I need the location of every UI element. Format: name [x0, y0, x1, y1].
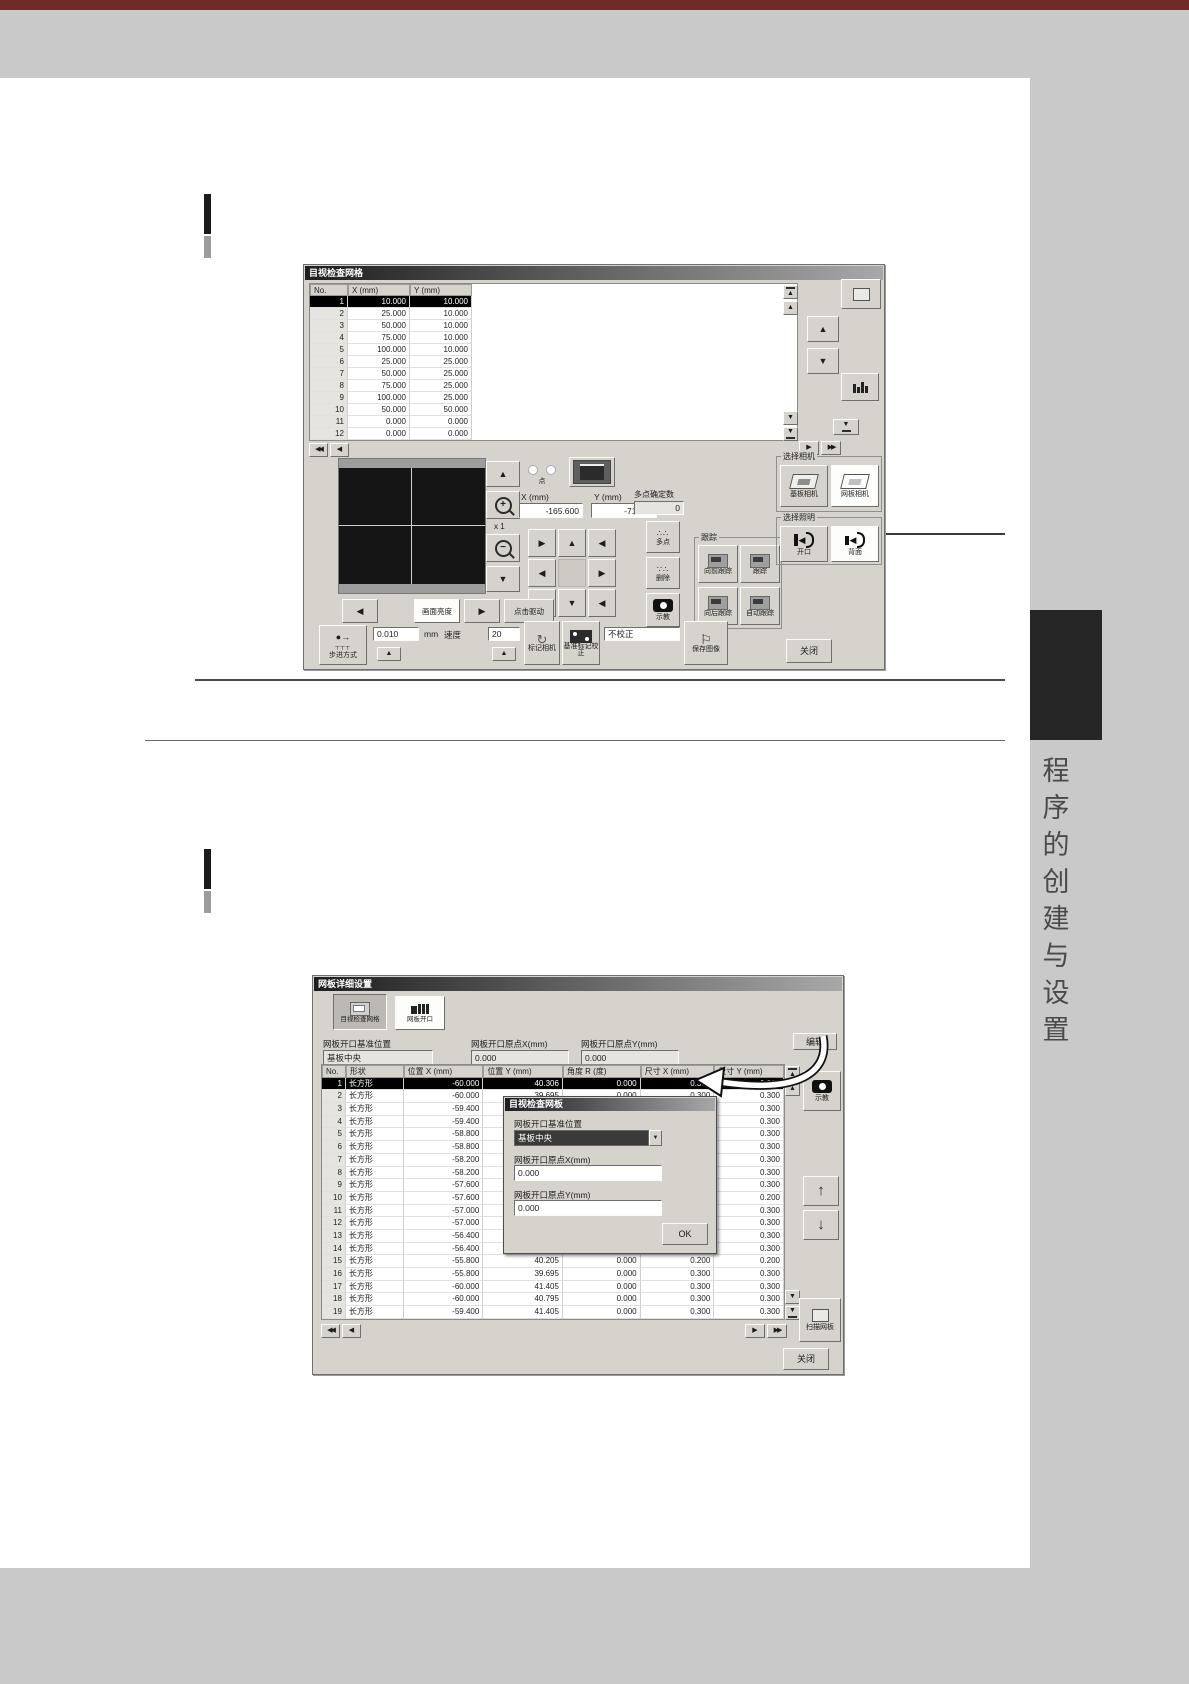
table-cell[interactable]: 0.300 — [714, 1281, 784, 1294]
table-cell[interactable]: 3 — [322, 1103, 346, 1116]
table-cell[interactable]: 长方形 — [346, 1243, 404, 1256]
table-cell[interactable]: 19 — [322, 1306, 346, 1319]
table-cell[interactable]: -56.400 — [404, 1230, 484, 1243]
section-marker-shadow — [204, 891, 211, 913]
crosshair-vertical — [411, 468, 412, 584]
step-mode-button[interactable]: ●→ ┬┬┬ 步进方式 — [319, 625, 367, 665]
table-cell[interactable]: 25.000 — [410, 368, 472, 380]
table-cell[interactable]: 9 — [310, 392, 348, 404]
stencil-aperture-toolbar-button[interactable]: 网板开口 — [395, 996, 445, 1030]
table-header-row: No.形状位置 X (mm)位置 Y (mm)角度 R (度)尺寸 X (mm)… — [322, 1065, 784, 1078]
step-mode-icon: ●→ — [336, 632, 350, 642]
edit-button[interactable]: 编辑 — [793, 1033, 837, 1050]
scroll-top-button[interactable]: ▲ — [785, 1066, 800, 1080]
table-cell[interactable]: 11 — [310, 416, 348, 428]
view-down-button[interactable]: ▼ — [486, 566, 520, 592]
capture-tool-button[interactable] — [841, 279, 881, 309]
table-cell[interactable]: 41.405 — [483, 1281, 563, 1294]
table-cell[interactable]: 0.300 — [714, 1306, 784, 1319]
table-cell[interactable]: 0.000 — [563, 1281, 641, 1294]
jog-right-button[interactable]: ▶ — [588, 559, 616, 587]
multi-point-count-value: 0 — [634, 501, 684, 515]
table-cell[interactable]: 75.000 — [348, 380, 410, 392]
track-auto-button[interactable]: 自动跟踪 — [740, 587, 780, 625]
table-cell[interactable]: 长方形 — [346, 1116, 404, 1129]
table-cell[interactable]: 0.000 — [348, 416, 410, 428]
table-row[interactable]: 5100.00010.000 — [310, 344, 797, 356]
point-indicator: 点 — [528, 465, 556, 485]
delete-point-icon: ∵∴ — [657, 565, 669, 575]
table-cell[interactable]: -57.600 — [404, 1179, 484, 1192]
table-cell[interactable]: 长方形 — [346, 1306, 404, 1319]
table-cell[interactable]: 1 — [322, 1078, 346, 1091]
brightness-button[interactable]: 画面亮度 — [414, 599, 460, 623]
table-cell[interactable]: 0.300 — [641, 1306, 715, 1319]
move-down-button[interactable]: ↓ — [803, 1210, 839, 1240]
table-cell[interactable]: 25.000 — [348, 308, 410, 320]
table-cell[interactable]: 10.000 — [410, 344, 472, 356]
table-cell[interactable]: 长方形 — [346, 1090, 404, 1103]
stencil-camera-button[interactable]: 网板相机 — [831, 465, 879, 507]
table-row[interactable]: 225.00010.000 — [310, 308, 797, 320]
crosshair-horizontal — [339, 525, 485, 526]
table-cell[interactable]: 7 — [310, 368, 348, 380]
scanner-icon — [812, 1309, 829, 1322]
page-prev-button[interactable]: ◀ — [342, 1324, 361, 1338]
visual-check-grid-window: 目视检查网格 No.X (mm)Y (mm) 110.00010.000225.… — [303, 264, 885, 670]
zoom-out-button[interactable]: − — [486, 534, 520, 562]
step-mode-ticks: ┬┬┬ — [335, 642, 351, 652]
chapter-title-vertical: 程序的创建与设置 — [1036, 756, 1076, 1052]
bars-icon — [853, 382, 868, 393]
table-cell[interactable]: 40.306 — [483, 1078, 563, 1091]
table-cell[interactable]: 长方形 — [346, 1268, 404, 1281]
camera-strip — [339, 459, 485, 468]
table-cell[interactable]: 50.000 — [410, 404, 472, 416]
table-cell[interactable]: -60.000 — [404, 1078, 484, 1091]
board-camera-icon — [789, 474, 819, 489]
multi-point-icon: ∴∴ — [657, 529, 669, 539]
table-row[interactable]: 350.00010.000 — [310, 320, 797, 332]
chapter-title-char: 与 — [1043, 941, 1070, 971]
table-row[interactable]: 16长方形-55.80039.6950.0000.3000.300 — [322, 1268, 784, 1281]
table-cell[interactable]: 0.300 — [714, 1128, 784, 1141]
table-cell[interactable]: 0.000 — [410, 416, 472, 428]
chapter-title-char: 建 — [1043, 904, 1070, 934]
teach-icon — [653, 599, 673, 612]
scroll-up-button[interactable]: ▲ — [785, 1082, 800, 1096]
y-coord-label: Y (mm) — [594, 492, 622, 502]
track-icon — [750, 554, 770, 568]
delete-point-button[interactable]: ∵∴ 删除 — [646, 557, 680, 589]
table-cell[interactable]: -58.800 — [404, 1141, 484, 1154]
table-cell[interactable]: 长方形 — [346, 1281, 404, 1294]
table-cell[interactable]: 3 — [310, 320, 348, 332]
origin-x-value: 0.000 — [471, 1050, 569, 1065]
table-row[interactable]: 1050.00050.000 — [310, 404, 797, 416]
horizontal-rule — [195, 679, 1005, 681]
bottom-gray-band — [0, 1568, 1189, 1684]
table-cell[interactable]: 1 — [310, 296, 348, 308]
table-cell[interactable]: 40.205 — [483, 1255, 563, 1268]
table-row[interactable]: 475.00010.000 — [310, 332, 797, 344]
table-cell[interactable]: 0.300 — [714, 1243, 784, 1256]
scroll-bottom-button[interactable]: ▼ — [785, 1306, 800, 1320]
table-cell[interactable]: 100.000 — [348, 344, 410, 356]
table-cell[interactable]: 0.000 — [348, 428, 410, 440]
origin-y-label: 网板开口原点Y(mm) — [581, 1038, 658, 1050]
table-cell[interactable]: 0.000 — [410, 428, 472, 440]
table-cell[interactable]: 0.200 — [641, 1255, 715, 1268]
jog-up-button[interactable]: ▲ — [558, 529, 586, 557]
table-cell[interactable]: 10 — [310, 404, 348, 416]
table-cell[interactable]: 5 — [322, 1128, 346, 1141]
table-cell[interactable]: 0.000 — [563, 1078, 641, 1091]
scan-stencil-button[interactable]: 扫描网板 — [799, 1298, 841, 1342]
table-cell[interactable]: 0.300 — [641, 1078, 715, 1091]
table-cell: No. — [322, 1065, 346, 1078]
table-cell[interactable]: 0.300 — [714, 1230, 784, 1243]
table-cell[interactable]: 25.000 — [410, 380, 472, 392]
table-cell[interactable]: 0.300 — [714, 1154, 784, 1167]
table-cell[interactable]: -59.400 — [404, 1103, 484, 1116]
move-up-button[interactable]: ↑ — [803, 1176, 839, 1206]
table-cell[interactable]: 2 — [322, 1090, 346, 1103]
chapter-title-char: 创 — [1043, 867, 1070, 897]
window-title: 网板详细设置 — [314, 977, 842, 991]
table-cell[interactable]: 0.000 — [563, 1293, 641, 1306]
table-cell[interactable]: -59.400 — [404, 1116, 484, 1129]
table-cell[interactable]: 50.000 — [348, 404, 410, 416]
table-body: 110.00010.000225.00010.000350.00010.0004… — [310, 296, 797, 440]
table-cell[interactable]: 50.000 — [348, 320, 410, 332]
screen-icon — [573, 460, 611, 484]
table-cell: 位置 X (mm) — [404, 1065, 484, 1078]
page-first-button[interactable]: ◀◀ — [321, 1324, 340, 1338]
table-row[interactable]: 19长方形-59.40041.4050.0000.3000.300 — [322, 1306, 784, 1319]
aperture-light-icon: ◀ — [794, 532, 815, 548]
dialog-origin-x-input[interactable]: 0.000 — [514, 1165, 662, 1181]
table-cell[interactable]: 4 — [322, 1116, 346, 1129]
table-cell[interactable]: 长方形 — [346, 1141, 404, 1154]
table-cell[interactable]: 25.000 — [348, 356, 410, 368]
table-cell[interactable]: 0.300 — [714, 1268, 784, 1281]
unit-label: mm — [424, 629, 438, 639]
fiducial-icon — [570, 630, 592, 643]
table-cell[interactable]: -58.800 — [404, 1128, 484, 1141]
table-row[interactable]: 17长方形-60.00041.4050.0000.3000.300 — [322, 1281, 784, 1294]
table-cell: 位置 Y (mm) — [483, 1065, 563, 1078]
pan-left-button[interactable]: ◀ — [342, 599, 378, 623]
table-cell[interactable]: -57.600 — [404, 1192, 484, 1205]
page-last-button[interactable]: ▶▶ — [821, 441, 841, 455]
visual-check-grid-toolbar-button[interactable]: 目视检查网格 — [333, 994, 387, 1030]
table-cell: No. — [310, 284, 348, 296]
table-cell[interactable]: 10.000 — [410, 332, 472, 344]
table-cell[interactable]: 0.300 — [641, 1293, 715, 1306]
table-cell[interactable]: 长方形 — [346, 1217, 404, 1230]
table-cell[interactable]: 0.000 — [563, 1268, 641, 1281]
speed-label: 速度 — [444, 629, 461, 641]
table-row[interactable]: 625.00025.000 — [310, 356, 797, 368]
table-cell: 尺寸 Y (mm) — [714, 1065, 784, 1078]
table-cell[interactable]: 25.000 — [410, 356, 472, 368]
track-backward-icon — [708, 596, 728, 610]
page-prev-button[interactable]: ◀ — [330, 443, 349, 457]
table-cell[interactable]: 17 — [322, 1281, 346, 1294]
table-cell[interactable]: 4 — [310, 332, 348, 344]
table-row[interactable]: 18长方形-60.00040.7950.0000.3000.300 — [322, 1293, 784, 1306]
grid-button-icon — [350, 1002, 370, 1016]
table-cell[interactable]: 40.795 — [483, 1293, 563, 1306]
scroll-bottom-button[interactable]: ▼ — [783, 427, 798, 441]
stencil-camera-icon — [840, 474, 870, 489]
track-forward-icon — [708, 554, 728, 568]
table-cell[interactable]: 9 — [322, 1179, 346, 1192]
table-cell: X (mm) — [348, 284, 410, 296]
table-cell[interactable]: 0.300 — [714, 1116, 784, 1129]
window-title: 目视检查网格 — [305, 266, 883, 280]
table-cell[interactable]: 0.200 — [714, 1255, 784, 1268]
table-cell[interactable]: 25.000 — [410, 392, 472, 404]
row-up-button[interactable]: ▲ — [807, 316, 839, 342]
table-cell[interactable]: 0.300 — [641, 1268, 715, 1281]
table-row[interactable]: 110.0000.000 — [310, 416, 797, 428]
aperture-light-button[interactable]: ◀开口 — [780, 526, 828, 562]
visual-check-stencil-dialog: 目视检查网板 网板开口基准位置 基板中央 ▼ 网板开口原点X(mm) 0.000… — [503, 1096, 717, 1254]
table-cell[interactable]: 100.000 — [348, 392, 410, 404]
zoom-scale-label: x 1 — [494, 522, 505, 531]
table-cell: 角度 R (度) — [563, 1065, 641, 1078]
teach-button[interactable]: 示教 — [803, 1071, 841, 1111]
table-cell[interactable]: -57.000 — [404, 1217, 484, 1230]
table-cell[interactable]: 长方形 — [346, 1103, 404, 1116]
jog-left-b-button[interactable]: ◀ — [588, 589, 616, 617]
table-cell[interactable]: 14 — [322, 1243, 346, 1256]
table-cell[interactable]: 2 — [310, 308, 348, 320]
table-row[interactable]: 110.00010.000 — [310, 296, 797, 308]
table-cell[interactable]: 6 — [310, 356, 348, 368]
dialog-origin-y-input[interactable]: 0.000 — [514, 1200, 662, 1216]
step-value-input[interactable]: 0.010 — [373, 627, 419, 641]
table-row[interactable]: 15长方形-55.80040.2050.0000.2000.200 — [322, 1255, 784, 1268]
table-cell[interactable]: -60.000 — [404, 1090, 484, 1103]
table-cell[interactable]: 15 — [322, 1255, 346, 1268]
table-cell[interactable]: 16 — [322, 1268, 346, 1281]
table-cell[interactable]: -60.000 — [404, 1293, 484, 1306]
track-forward-button[interactable]: 向前跟踪 — [698, 545, 738, 583]
table-cell[interactable]: 长方形 — [346, 1078, 404, 1091]
table-cell[interactable]: 12 — [310, 428, 348, 440]
table-cell: 形状 — [346, 1065, 404, 1078]
table-cell: 尺寸 X (mm) — [641, 1065, 715, 1078]
table-header-row: No.X (mm)Y (mm) — [310, 284, 797, 296]
magnifier-plus-icon: + — [495, 497, 512, 514]
dialog-ref-dropdown[interactable]: 基板中央 — [514, 1130, 649, 1146]
table-cell[interactable]: -55.800 — [404, 1268, 484, 1281]
table-cell[interactable]: 8 — [310, 380, 348, 392]
x-coord-value: -165.600 — [519, 503, 583, 518]
table-cell[interactable]: 长方形 — [346, 1293, 404, 1306]
camera-select-label: 选择相机 — [781, 451, 817, 462]
speed-spin-button[interactable]: ▲ — [492, 647, 516, 661]
table-cell[interactable]: 10.000 — [410, 296, 472, 308]
jog-left-button[interactable]: ◀ — [528, 559, 556, 587]
section-marker — [204, 194, 211, 234]
table-cell[interactable]: 11 — [322, 1205, 346, 1218]
table-cell[interactable]: 长方形 — [346, 1255, 404, 1268]
multi-point-count-label: 多点确定数 — [634, 489, 674, 500]
jog-left-a-button[interactable]: ◀ — [588, 529, 616, 557]
jog-right-a-button[interactable]: ▶ — [528, 529, 556, 557]
horizontal-rule — [145, 740, 1005, 741]
scroll-down-button[interactable]: ▼ — [783, 411, 798, 425]
tracking-group-label: 跟踪 — [699, 532, 719, 543]
table-cell[interactable]: 5 — [310, 344, 348, 356]
camera-display-toggle[interactable] — [569, 457, 615, 487]
table-cell[interactable]: 长方形 — [346, 1154, 404, 1167]
speed-value-input[interactable]: 20 — [488, 627, 520, 641]
camera-view — [338, 458, 486, 594]
table-cell[interactable]: -57.000 — [404, 1205, 484, 1218]
section-marker — [204, 849, 211, 889]
origin-x-label: 网板开口原点X(mm) — [471, 1038, 548, 1050]
stencil-detail-window: 网板详细设置 目视检查网格 网板开口 网板开口基准位置 基板中央 网板开口原点X… — [312, 975, 844, 1375]
table-cell[interactable]: 0.300 — [714, 1205, 784, 1218]
save-image-button[interactable]: ⚐ 保存图像 — [684, 621, 728, 665]
table-cell[interactable]: 长方形 — [346, 1192, 404, 1205]
correction-status-field: 不校正 — [604, 627, 680, 641]
mark-camera-button[interactable]: ↻ 标记相机 — [524, 621, 560, 665]
jump-end-button[interactable]: ▼ — [833, 419, 859, 435]
pan-right-button[interactable]: ▶ — [464, 599, 500, 623]
table-cell[interactable]: 10.000 — [348, 296, 410, 308]
callout-line — [882, 533, 1005, 535]
table-header: No.形状位置 X (mm)位置 Y (mm)角度 R (度)尺寸 X (mm)… — [322, 1065, 784, 1078]
magnifier-minus-icon: − — [495, 540, 512, 557]
table-cell: Y (mm) — [410, 284, 472, 296]
table-cell[interactable]: 0.300 — [714, 1078, 784, 1091]
jog-down-button[interactable]: ▼ — [558, 589, 586, 617]
track-button[interactable]: 跟踪 — [740, 545, 780, 583]
manual-page: 程序的创建与设置 目视检查网格 No.X (mm)Y (mm) 110.0001… — [0, 0, 1189, 1684]
track-backward-button[interactable]: 向后跟踪 — [698, 587, 738, 625]
table-row[interactable]: 120.0000.000 — [310, 428, 797, 440]
table-cell[interactable]: 0.300 — [714, 1167, 784, 1180]
table-cell[interactable]: 10.000 — [410, 308, 472, 320]
table-cell[interactable]: 12 — [322, 1217, 346, 1230]
table-cell[interactable]: 6 — [322, 1141, 346, 1154]
back-light-icon: ◀ — [845, 532, 866, 548]
table-cell[interactable]: 8 — [322, 1167, 346, 1180]
teach-icon — [812, 1080, 832, 1093]
page-next-button[interactable]: ▶ — [745, 1324, 765, 1338]
table-cell[interactable]: 0.300 — [714, 1090, 784, 1103]
table-cell[interactable]: -58.200 — [404, 1167, 484, 1180]
table-row[interactable]: 1长方形-60.00040.3060.0000.3000.300 — [322, 1078, 784, 1091]
zoom-in-button[interactable]: + — [486, 491, 520, 519]
table-row[interactable]: 9100.00025.000 — [310, 392, 797, 404]
table-cell[interactable]: -58.200 — [404, 1154, 484, 1167]
origin-y-value: 0.000 — [581, 1050, 679, 1065]
table-cell[interactable]: 7 — [322, 1154, 346, 1167]
scroll-down-button[interactable]: ▼ — [785, 1290, 800, 1304]
table-cell[interactable]: 18 — [322, 1293, 346, 1306]
page-last-button[interactable]: ▶▶ — [767, 1324, 787, 1338]
table-cell[interactable]: 50.000 — [348, 368, 410, 380]
table-cell[interactable]: 0.300 — [714, 1179, 784, 1192]
table-cell[interactable]: 0.300 — [714, 1103, 784, 1116]
row-down-button[interactable]: ▼ — [807, 348, 839, 374]
table-cell[interactable]: 长方形 — [346, 1205, 404, 1218]
fiducial-correct-button[interactable]: 基准标记校正 — [562, 621, 600, 665]
track-auto-icon — [750, 596, 770, 610]
table-cell[interactable]: 75.000 — [348, 332, 410, 344]
chapter-tab — [1030, 610, 1102, 740]
view-up-button[interactable]: ▲ — [486, 461, 520, 487]
scroll-up-button[interactable]: ▲ — [783, 301, 798, 315]
board-camera-button[interactable]: 基板相机 — [780, 465, 828, 507]
ok-button[interactable]: OK — [662, 1223, 708, 1245]
table-cell[interactable]: 长方形 — [346, 1128, 404, 1141]
table-cell[interactable]: -56.400 — [404, 1243, 484, 1256]
table-cell[interactable]: 0.200 — [714, 1192, 784, 1205]
close-button[interactable]: 关闭 — [783, 1348, 829, 1370]
table-cell[interactable]: 0.300 — [714, 1217, 784, 1230]
dropdown-arrow-icon[interactable]: ▼ — [649, 1130, 662, 1146]
table-cell[interactable]: 0.000 — [563, 1255, 641, 1268]
chapter-title-char: 的 — [1043, 830, 1070, 860]
table-cell[interactable]: 长方形 — [346, 1230, 404, 1243]
aperture-ref-value: 基板中央 — [323, 1050, 433, 1065]
list-tool-button[interactable] — [841, 373, 879, 401]
click-drive-button[interactable]: 点击驱动 — [504, 599, 554, 623]
grid-point-table: No.X (mm)Y (mm) 110.00010.000225.00010.0… — [309, 283, 798, 441]
mark-camera-icon: ↻ — [537, 635, 548, 645]
table-row[interactable]: 750.00025.000 — [310, 368, 797, 380]
chapter-title-char: 程 — [1043, 756, 1070, 786]
table-cell[interactable]: 长方形 — [346, 1179, 404, 1192]
table-cell[interactable]: -60.000 — [404, 1281, 484, 1294]
table-cell[interactable]: 13 — [322, 1230, 346, 1243]
flag-icon: ⚐ — [700, 633, 712, 646]
table-cell[interactable]: 0.300 — [714, 1293, 784, 1306]
table-cell[interactable]: 长方形 — [346, 1167, 404, 1180]
table-cell[interactable]: 39.695 — [483, 1268, 563, 1281]
close-button[interactable]: 关闭 — [786, 639, 832, 663]
table-cell[interactable]: 41.405 — [483, 1306, 563, 1319]
table-header: No.X (mm)Y (mm) — [310, 284, 797, 296]
back-light-button[interactable]: ◀背面 — [831, 526, 879, 562]
table-row[interactable]: 875.00025.000 — [310, 380, 797, 392]
teach-button[interactable]: 示教 — [646, 593, 680, 627]
table-cell[interactable]: 0.300 — [714, 1141, 784, 1154]
chapter-title-char: 设 — [1043, 978, 1070, 1008]
chapter-title-char: 置 — [1043, 1015, 1070, 1045]
scroll-top-button[interactable]: ▲ — [783, 285, 798, 299]
table-cell[interactable]: 0.000 — [563, 1306, 641, 1319]
multi-point-button[interactable]: ∴∴ 多点 — [646, 521, 680, 553]
table-cell[interactable]: 0.300 — [641, 1281, 715, 1294]
table-cell[interactable]: 10.000 — [410, 320, 472, 332]
top-maroon-bar — [0, 0, 1189, 10]
dialog-title: 目视检查网板 — [505, 1098, 715, 1111]
table-cell[interactable]: -55.800 — [404, 1255, 484, 1268]
table-cell[interactable]: -59.400 — [404, 1306, 484, 1319]
page-first-button[interactable]: ◀◀ — [309, 443, 328, 457]
step-value-spin-button[interactable]: ▲ — [377, 647, 401, 661]
table-cell[interactable]: 10 — [322, 1192, 346, 1205]
